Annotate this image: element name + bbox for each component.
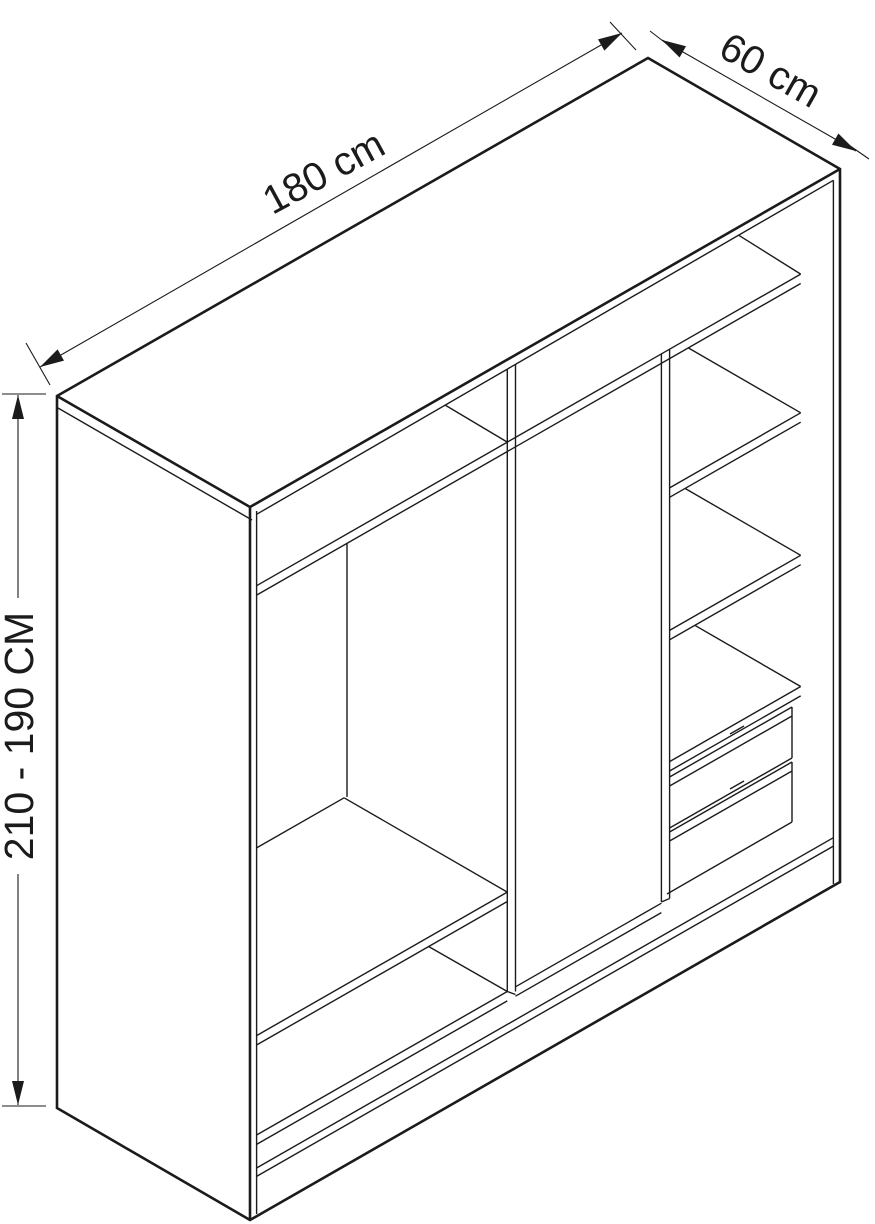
- width-dimension-label: 180 cm: [256, 122, 392, 223]
- carcass-outer-outline: [57, 58, 840, 1220]
- height-arrowhead-top: [12, 395, 24, 419]
- cabinet-floor: [257, 903, 662, 1144]
- drawer-lower: [667, 762, 792, 894]
- wardrobe-technical-drawing: 180 cm 60 cm 210 - 190 CM: [0, 0, 875, 1224]
- dimension-width: 180 cm: [26, 22, 636, 385]
- depth-dimension-label: 60 cm: [712, 25, 828, 117]
- dimension-height: 210 - 190 CM: [0, 394, 46, 1106]
- depth-arrowhead-left: [662, 40, 686, 58]
- height-dimension-label: 210 - 190 CM: [0, 612, 42, 860]
- width-extension-lines: [26, 22, 636, 385]
- middle-partition: [347, 364, 516, 994]
- left-low-shelf: [257, 798, 508, 1045]
- dimension-depth: 60 cm: [650, 25, 869, 159]
- right-partition: [661, 349, 669, 902]
- drawer-lower-handle-notch: [730, 781, 744, 789]
- height-arrowhead-bottom: [12, 1081, 24, 1105]
- depth-arrowhead-right: [832, 134, 856, 152]
- drawer-upper: [670, 707, 792, 828]
- plinth: [257, 838, 834, 1177]
- width-dimension-line: [40, 33, 622, 367]
- width-arrowhead-right: [598, 33, 622, 51]
- top-shelf: [257, 235, 801, 595]
- width-arrowhead-left: [40, 349, 64, 367]
- wardrobe-drawing: [57, 58, 840, 1220]
- technical-drawing-page: 180 cm 60 cm 210 - 190 CM: [0, 0, 875, 1224]
- right-column-shelves: [670, 348, 801, 771]
